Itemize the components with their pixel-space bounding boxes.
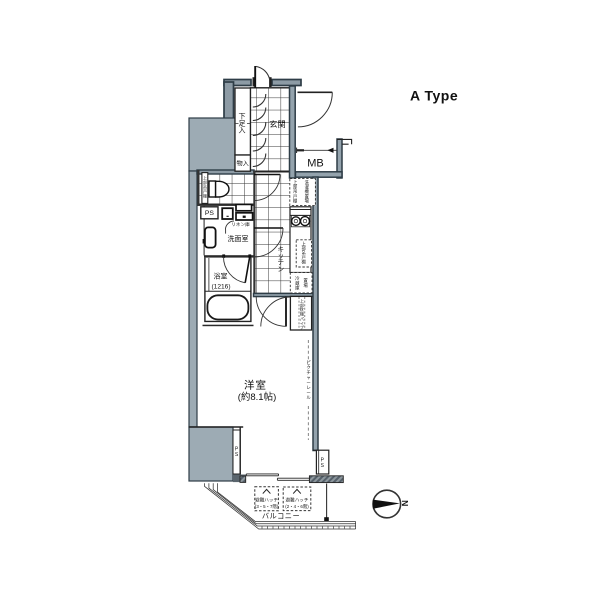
svg-text:避難ハッチ: 避難ハッチ	[255, 497, 278, 504]
svg-text:キッチン: キッチン	[278, 247, 285, 274]
svg-text:洗面室: 洗面室	[228, 234, 249, 243]
svg-text:MB: MB	[307, 158, 324, 170]
svg-text:下足入: 下足入	[239, 113, 246, 135]
svg-text:物入: 物入	[237, 160, 249, 168]
svg-text:置場: 置場	[303, 278, 308, 289]
svg-text:上部吊戸棚: 上部吊戸棚	[293, 179, 298, 204]
svg-text:玄関: 玄関	[269, 119, 285, 129]
svg-text:N: N	[400, 500, 410, 506]
svg-text:(3・5・7階): (3・5・7階)	[255, 503, 279, 510]
svg-text:避難ハッチ: 避難ハッチ	[286, 497, 309, 504]
svg-text:洋室: 洋室	[244, 379, 267, 392]
svg-text:バルコニー: バルコニー	[262, 512, 300, 521]
svg-text:浴室: 浴室	[214, 272, 228, 281]
svg-text:(約8.1帖): (約8.1帖)	[238, 391, 277, 403]
svg-text:冷蔵庫: 冷蔵庫	[295, 275, 300, 292]
svg-text:上部吊戸棚: 上部吊戸棚	[203, 176, 207, 199]
svg-text:リネン庫: リネン庫	[231, 221, 250, 228]
svg-text:ピクチャーレール: ピクチャーレール	[306, 360, 311, 400]
svg-text:(2・4・6階): (2・4・6階)	[285, 503, 309, 510]
svg-text:パイプ: パイプ	[300, 317, 304, 331]
svg-text:PS: PS	[205, 210, 215, 217]
svg-text:A Type: A Type	[410, 88, 458, 104]
svg-text:上部枕棚: 上部枕棚	[300, 298, 304, 317]
svg-text:上部吊戸棚: 上部吊戸棚	[301, 241, 306, 266]
svg-text:(1216): (1216)	[211, 283, 230, 290]
svg-text:洗濯機置場: 洗濯機置場	[305, 179, 310, 204]
